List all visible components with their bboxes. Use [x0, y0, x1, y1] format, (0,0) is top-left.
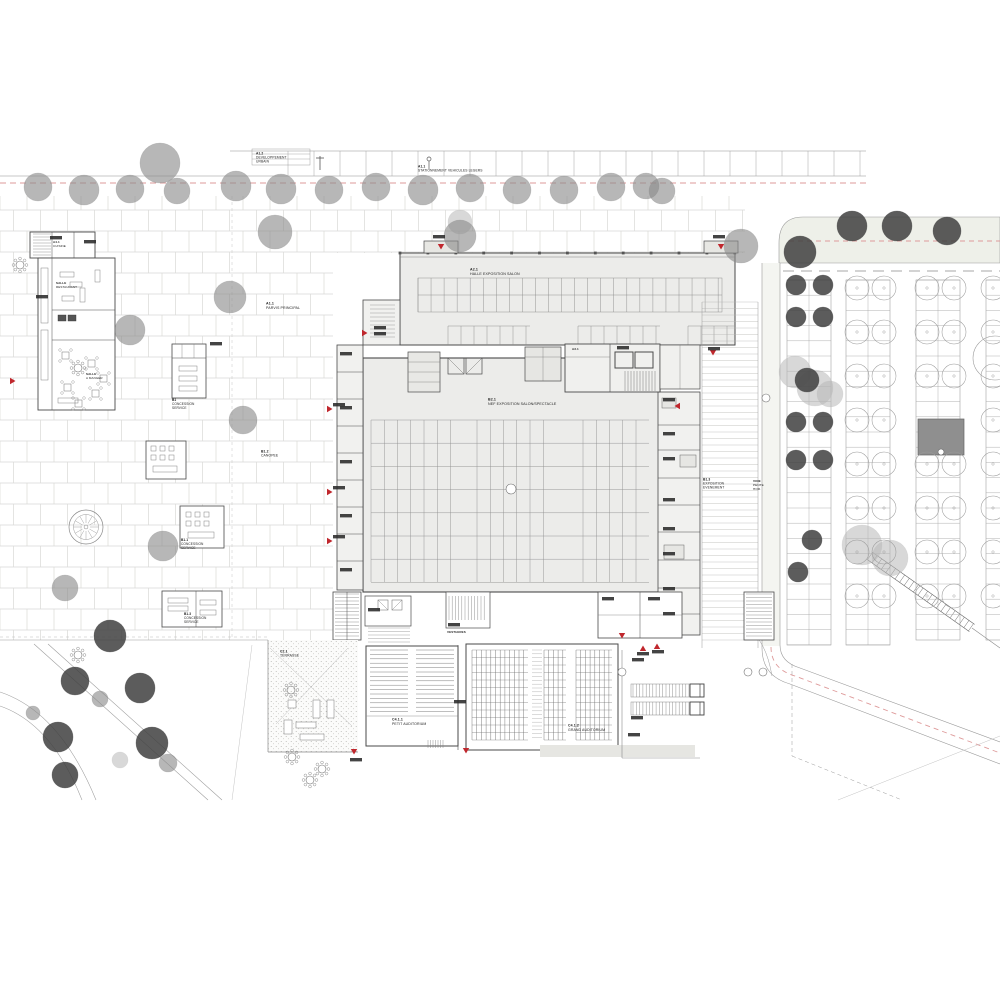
- tree-icon: [362, 173, 390, 201]
- plan-label-road-dev-urbain: A1.2DEVELOPPEMENTURBAIN: [256, 151, 287, 163]
- mini-label: [340, 406, 352, 409]
- tree-icon: [813, 412, 833, 432]
- chair-icon: [286, 760, 289, 763]
- outline-tree-icon: [915, 364, 939, 388]
- mini-label: [448, 623, 460, 626]
- outline-tree-icon: [926, 595, 928, 597]
- outline-tree-icon: [883, 331, 885, 333]
- plan-label-vestiaires: VESTIAIRES: [447, 630, 466, 634]
- chair-icon: [304, 783, 307, 786]
- outline-tree-icon: [942, 320, 966, 344]
- outline-tree-icon: [981, 452, 1000, 476]
- mini-label: [708, 347, 720, 350]
- chair-icon: [313, 774, 316, 777]
- mini-label: [433, 235, 445, 238]
- entry-block: [363, 300, 400, 345]
- site-plan-canvas: A1.2DEVELOPPEMENTURBAINA1.1STATIONNEMENT…: [0, 0, 1000, 1000]
- tree-icon: [52, 762, 78, 788]
- outline-tree-icon: [981, 276, 1000, 300]
- tree-icon: [148, 531, 178, 561]
- mini-label: [663, 587, 675, 590]
- hatch-line: [909, 581, 914, 588]
- outline-tree-icon: [883, 287, 885, 289]
- outline-tree-icon: [915, 320, 939, 344]
- outline-tree-icon: [953, 375, 955, 377]
- outline-tree-icon: [953, 463, 955, 465]
- mini-label: [333, 535, 345, 538]
- restaurant: [38, 258, 115, 410]
- outline-tree-icon: [856, 287, 858, 289]
- tree-icon: [315, 176, 343, 204]
- outline-tree-icon: [872, 364, 896, 388]
- circle-marker: [618, 668, 626, 676]
- chair-icon: [316, 772, 319, 775]
- tree-icon: [266, 174, 296, 204]
- tree-icon: [214, 281, 246, 313]
- entrance-arrow-icon: [654, 644, 660, 650]
- tree-icon: [784, 236, 816, 268]
- outline-tree-icon: [883, 595, 885, 597]
- mini-label: [713, 235, 725, 238]
- outline-tree-icon: [981, 584, 1000, 608]
- mini-label: [340, 460, 352, 463]
- outline-tree-icon: [953, 331, 955, 333]
- chair-icon: [297, 756, 300, 759]
- chair-icon: [316, 763, 319, 766]
- outline-tree-icon: [992, 331, 994, 333]
- round-table-icon: [306, 776, 314, 784]
- outline-tree-icon: [953, 287, 955, 289]
- outline-tree-icon: [883, 463, 885, 465]
- tree-icon: [724, 229, 758, 263]
- outline-tree-icon: [981, 320, 1000, 344]
- nef-hall: [363, 358, 660, 592]
- hatch-line: [927, 594, 932, 601]
- tree-icon: [788, 562, 808, 582]
- equipment: [68, 315, 76, 321]
- tree-icon: [817, 381, 843, 407]
- outline-tree-icon: [981, 540, 1000, 564]
- tree-icon: [52, 575, 78, 601]
- column-marker: [399, 252, 402, 255]
- column-marker: [678, 252, 681, 255]
- outline-tree-icon: [981, 364, 1000, 388]
- outline-tree-icon: [845, 452, 869, 476]
- chair-icon: [313, 783, 316, 786]
- plan-path: [762, 648, 1000, 764]
- mini-label: [663, 498, 675, 501]
- outline-tree-icon: [942, 364, 966, 388]
- mini-label: [663, 398, 675, 401]
- mini-label: [454, 700, 466, 703]
- tree-icon: [597, 173, 625, 201]
- mini-label: [631, 716, 643, 719]
- round-table-icon: [288, 753, 296, 761]
- chair-icon: [302, 779, 305, 782]
- circle-marker: [938, 449, 944, 455]
- outline-tree-icon: [915, 452, 939, 476]
- chair-icon: [284, 756, 287, 759]
- outline-tree-icon: [992, 595, 994, 597]
- petit-auditorium: [366, 646, 458, 746]
- tree-icon: [786, 450, 806, 470]
- tree-icon: [24, 173, 52, 201]
- tree-icon: [221, 171, 251, 201]
- chair-icon: [77, 660, 80, 663]
- mini-label: [632, 658, 644, 661]
- outline-tree-icon: [845, 584, 869, 608]
- tree-icon: [408, 175, 438, 205]
- tree-icon: [786, 412, 806, 432]
- outline-tree-icon: [856, 595, 858, 597]
- outline-tree-icon: [845, 320, 869, 344]
- mini-label: [663, 552, 675, 555]
- mini-label: [210, 342, 222, 345]
- outline-tree-icon: [883, 419, 885, 421]
- outline-tree-icon: [845, 364, 869, 388]
- chair-icon: [309, 772, 312, 775]
- tree-icon: [456, 174, 484, 202]
- chair-icon: [291, 762, 294, 765]
- outline-tree-icon: [992, 375, 994, 377]
- tree-icon: [112, 752, 128, 768]
- chair-icon: [325, 772, 328, 775]
- outline-tree-icon: [926, 551, 928, 553]
- planter: [296, 722, 316, 728]
- table: [288, 700, 296, 708]
- hatch-line: [945, 607, 950, 614]
- plan-line: [792, 756, 902, 800]
- outline-tree-icon: [926, 287, 928, 289]
- grand-auditorium: [466, 644, 618, 750]
- tree-icon: [159, 754, 177, 772]
- tree-icon: [795, 368, 819, 392]
- plan-path: [780, 645, 1000, 742]
- pedestrian-icon: [427, 157, 431, 161]
- tree-icon: [444, 220, 476, 252]
- circle-marker: [759, 668, 767, 676]
- column-marker: [650, 252, 653, 255]
- outline-tree-icon: [845, 276, 869, 300]
- tree-icon: [92, 691, 108, 707]
- tree-icon: [933, 217, 961, 245]
- tree-icon: [786, 275, 806, 295]
- mini-label: [637, 652, 649, 655]
- outline-tree-icon: [915, 540, 939, 564]
- outline-tree-icon: [992, 287, 994, 289]
- hatch-line: [918, 588, 923, 595]
- mini-label: [663, 527, 675, 530]
- tree-icon: [26, 706, 40, 720]
- exhibition-hall: [400, 253, 735, 345]
- chair-icon: [321, 761, 324, 764]
- south-canopy: [540, 745, 695, 757]
- chair-icon: [314, 768, 317, 771]
- chair-icon: [81, 649, 84, 652]
- chair-icon: [72, 649, 75, 652]
- tree-icon: [837, 211, 867, 241]
- chair-icon: [325, 763, 328, 766]
- chair-icon: [321, 774, 324, 777]
- outline-tree-icon: [856, 375, 858, 377]
- outline-tree-icon: [942, 452, 966, 476]
- stair-block: [744, 592, 774, 640]
- outline-tree-icon: [872, 584, 896, 608]
- tree-icon: [503, 176, 531, 204]
- outline-tree-icon: [926, 331, 928, 333]
- mini-label: [340, 352, 352, 355]
- tree-icon: [69, 175, 99, 205]
- plan-line: [838, 736, 1000, 800]
- service-yard: [622, 650, 704, 758]
- outline-tree-icon: [942, 276, 966, 300]
- mini-label: [628, 733, 640, 736]
- planter: [300, 734, 324, 740]
- hatch-line: [904, 578, 909, 585]
- chair-icon: [295, 760, 298, 763]
- mini-label: [617, 346, 629, 349]
- planter: [284, 720, 292, 734]
- outline-tree-icon: [926, 463, 928, 465]
- entrance-arrow-icon: [463, 748, 469, 754]
- outline-tree-icon: [883, 375, 885, 377]
- outline-tree-icon: [942, 540, 966, 564]
- parking-column: [986, 280, 1000, 640]
- column-marker: [622, 252, 625, 255]
- mini-label: [340, 568, 352, 571]
- hatch-line: [964, 620, 969, 627]
- tree-icon: [229, 406, 257, 434]
- chair-icon: [83, 654, 86, 657]
- mini-label: [333, 403, 345, 406]
- tree-icon: [786, 307, 806, 327]
- outline-tree-icon: [992, 419, 994, 421]
- outline-tree-icon: [953, 551, 955, 553]
- outline-tree-icon: [981, 408, 1000, 432]
- plan-label-exposition-evenement: B1.3EXPOSITIONEVENEMENT: [703, 477, 725, 489]
- column-marker: [566, 252, 569, 255]
- tree-icon: [116, 175, 144, 203]
- column-marker: [594, 252, 597, 255]
- voie-strip: [762, 263, 780, 646]
- chair-icon: [315, 779, 318, 782]
- column-marker: [510, 252, 513, 255]
- outline-tree-icon: [992, 463, 994, 465]
- chair-icon: [81, 658, 84, 661]
- mini-label: [374, 332, 386, 335]
- west-service-rooms: [337, 345, 363, 590]
- hatch-line: [900, 575, 905, 582]
- outline-tree-icon: [915, 276, 939, 300]
- chair-icon: [72, 658, 75, 661]
- equipment: [58, 315, 66, 321]
- building-complex: [268, 241, 774, 757]
- tree-icon: [649, 178, 675, 204]
- outline-tree-icon: [872, 276, 896, 300]
- mini-label: [663, 432, 675, 435]
- mini-label: [50, 236, 62, 239]
- tree-icon: [258, 215, 292, 249]
- plan-line: [232, 645, 252, 800]
- tree-icon: [115, 315, 145, 345]
- outline-tree-icon: [872, 408, 896, 432]
- tree-icon: [43, 722, 73, 752]
- mini-label: [374, 326, 386, 329]
- outline-tree-icon: [872, 452, 896, 476]
- hatch-line: [968, 624, 973, 631]
- truck-icon: [690, 702, 704, 715]
- outline-tree-icon: [973, 336, 1000, 380]
- outline-tree-icon: [856, 463, 858, 465]
- outline-tree-icon: [872, 320, 896, 344]
- mini-label: [663, 612, 675, 615]
- round-table-icon: [318, 765, 326, 773]
- tree-icon: [136, 727, 168, 759]
- tree-icon: [813, 275, 833, 295]
- tree-icon: [813, 450, 833, 470]
- mini-label: [84, 240, 96, 243]
- circle-marker: [506, 484, 516, 494]
- tree-icon: [125, 673, 155, 703]
- hatch-line: [941, 604, 946, 611]
- bench: [313, 700, 320, 718]
- tree-icon: [550, 176, 578, 204]
- mini-label: [652, 650, 664, 653]
- tree-icon: [872, 540, 908, 576]
- mini-label: [36, 295, 48, 298]
- bench: [327, 700, 334, 718]
- round-table-icon: [74, 651, 82, 659]
- circle-marker: [762, 394, 770, 402]
- outline-tree-icon: [845, 408, 869, 432]
- mini-label: [648, 597, 660, 600]
- chair-icon: [304, 774, 307, 777]
- column-marker: [482, 252, 485, 255]
- truck-icon: [690, 684, 704, 697]
- chair-icon: [77, 647, 80, 650]
- mini-label: [333, 486, 345, 489]
- axis-pink-dashed: [771, 647, 1000, 753]
- hatch-line: [955, 614, 960, 621]
- chair-icon: [309, 785, 312, 788]
- mini-label: [663, 457, 675, 460]
- tree-icon: [94, 620, 126, 652]
- tree-icon: [882, 211, 912, 241]
- tree-icon: [164, 178, 190, 204]
- plan-label-road-stationnement: A1.1STATIONNEMENT VEHICULES LEGERS: [418, 164, 483, 172]
- hatch-line: [936, 601, 941, 608]
- entrance-arrow-icon: [710, 350, 716, 356]
- outline-tree-icon: [856, 331, 858, 333]
- tree-icon: [140, 143, 180, 183]
- chair-icon: [327, 768, 330, 771]
- mini-label: [368, 608, 380, 611]
- plan-rect: [680, 455, 696, 467]
- outline-tree-icon: [926, 375, 928, 377]
- entrance-arrow-icon: [640, 646, 646, 652]
- tree-icon: [813, 307, 833, 327]
- outline-tree-icon: [942, 584, 966, 608]
- circle-marker: [744, 668, 752, 676]
- tree-icon: [61, 667, 89, 695]
- outline-tree-icon: [953, 595, 955, 597]
- outline-tree-icon: [856, 419, 858, 421]
- plan-label-local-a31: A3.1: [572, 347, 579, 351]
- tree-icon: [802, 530, 822, 550]
- mini-label: [340, 514, 352, 517]
- outline-tree-icon: [992, 551, 994, 553]
- chair-icon: [70, 654, 73, 657]
- mini-label: [350, 758, 362, 761]
- mini-label: [602, 597, 614, 600]
- site-plan-page: A1.2DEVELOPPEMENTURBAINA1.1STATIONNEMENT…: [0, 0, 1000, 1000]
- column-marker: [538, 252, 541, 255]
